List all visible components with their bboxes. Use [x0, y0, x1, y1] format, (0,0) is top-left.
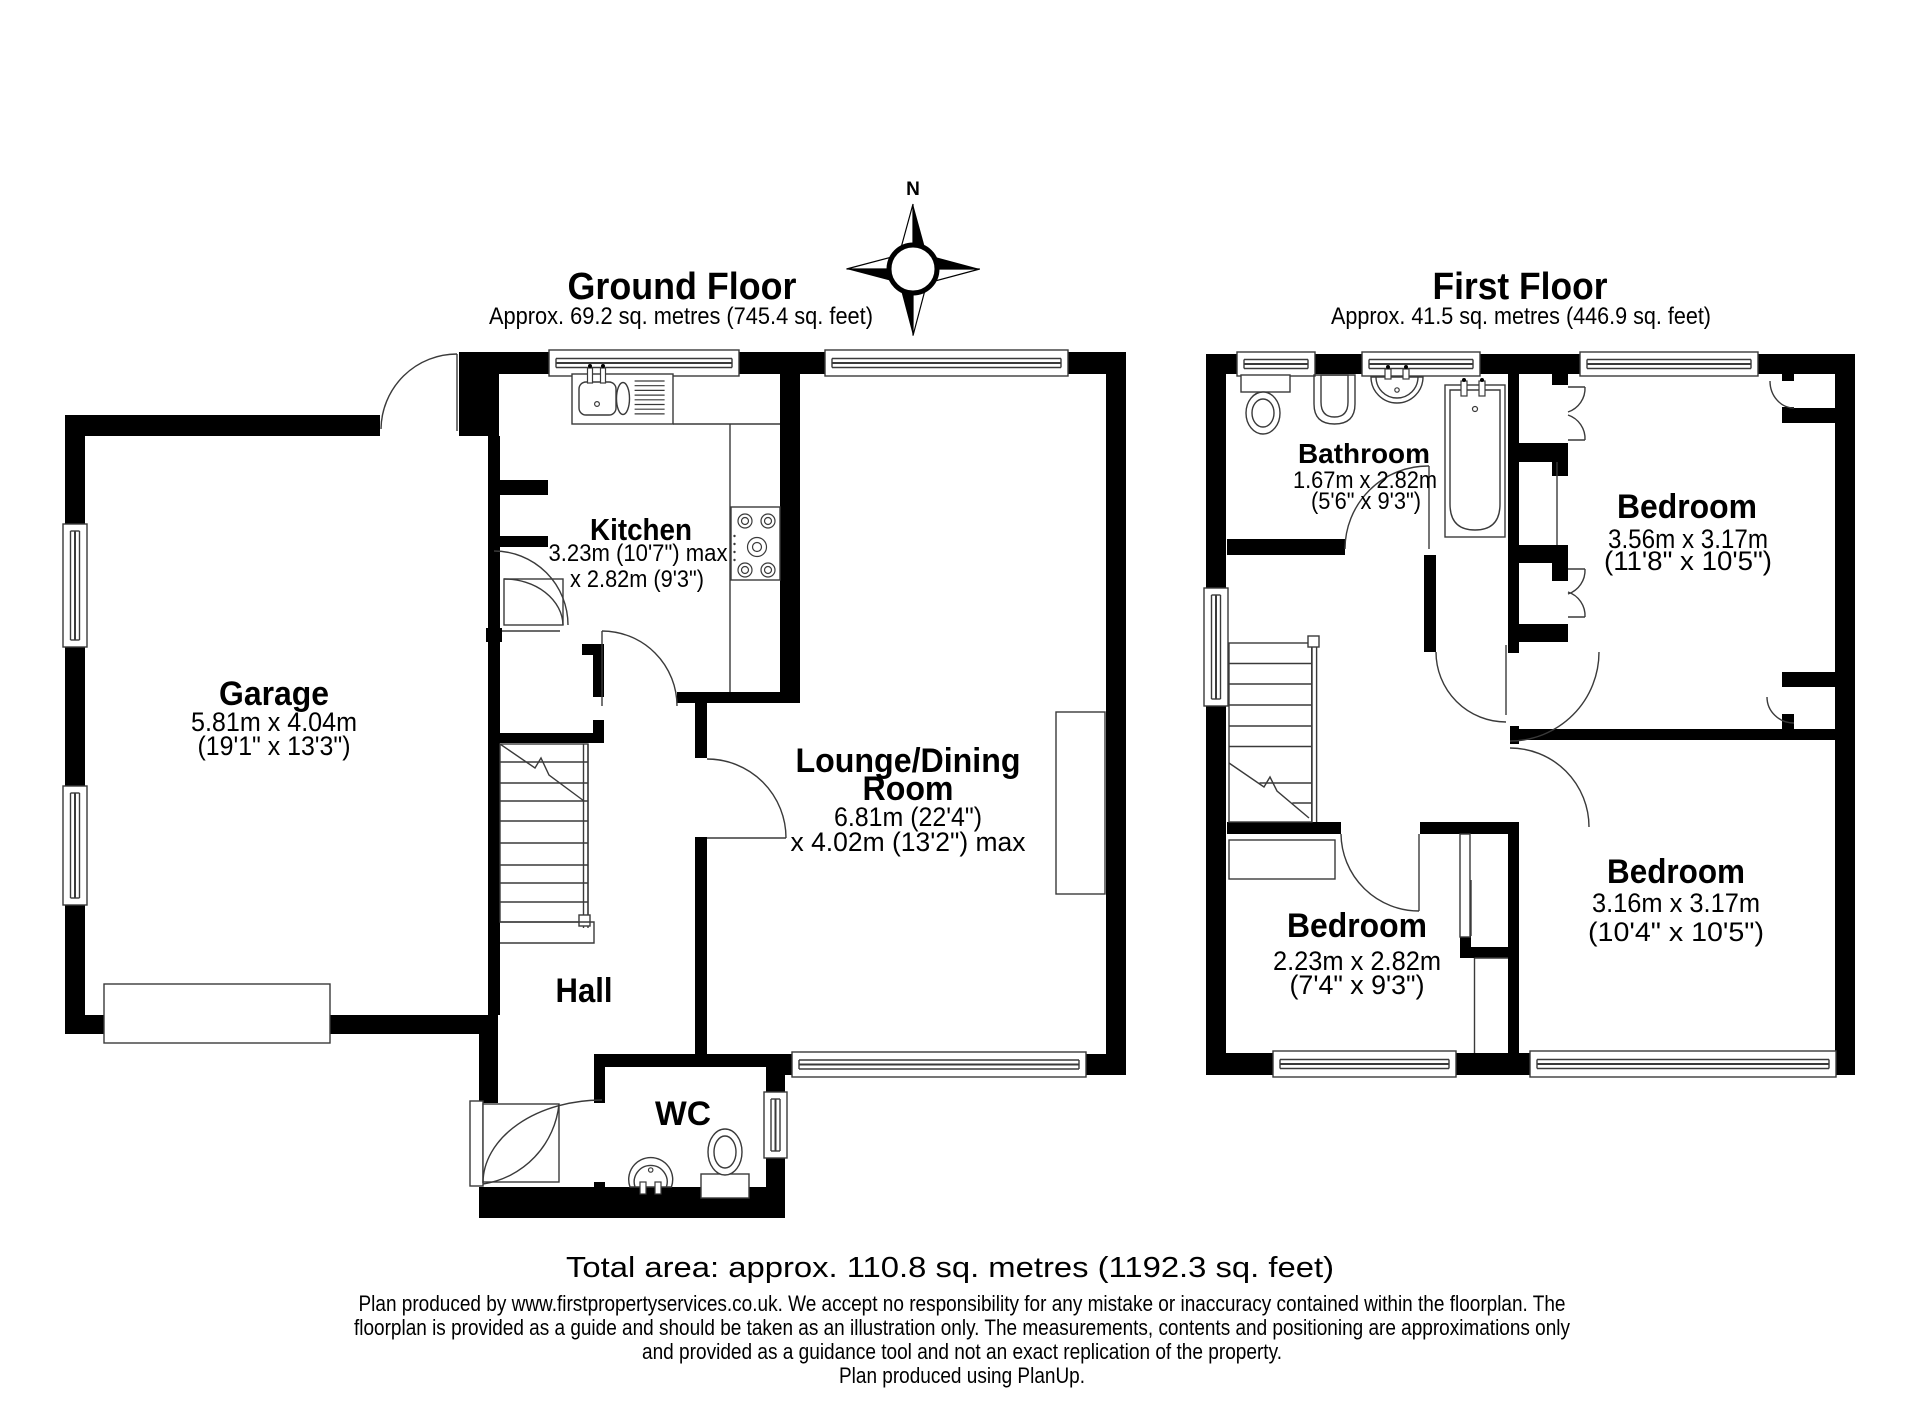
- svg-text:Bedroom: Bedroom: [1607, 853, 1745, 891]
- svg-text:Bedroom: Bedroom: [1287, 907, 1427, 945]
- svg-text:3.16m x 3.17m: 3.16m x 3.17m: [1592, 888, 1760, 918]
- svg-text:and provided as a guidance too: and provided as a guidance tool and not …: [642, 1339, 1282, 1364]
- svg-text:Ground Floor: Ground Floor: [568, 266, 797, 308]
- svg-text:N: N: [906, 179, 920, 200]
- svg-text:x 4.02m (13'2") max: x 4.02m (13'2") max: [791, 827, 1026, 857]
- svg-text:Bathroom: Bathroom: [1298, 438, 1430, 469]
- svg-text:(19'1" x 13'3"): (19'1" x 13'3"): [198, 731, 351, 761]
- svg-text:Approx. 69.2 sq. metres (745.4: Approx. 69.2 sq. metres (745.4 sq. feet): [489, 303, 873, 330]
- svg-text:WC: WC: [655, 1095, 711, 1133]
- svg-text:floorplan is provided as a gui: floorplan is provided as a guide and sho…: [354, 1315, 1570, 1340]
- svg-text:Bedroom: Bedroom: [1617, 488, 1757, 526]
- svg-text:Total area: approx. 110.8 sq.: Total area: approx. 110.8 sq. metres (11…: [566, 1252, 1334, 1284]
- svg-text:Hall: Hall: [556, 972, 613, 1010]
- svg-text:(5'6" x 9'3"): (5'6" x 9'3"): [1311, 488, 1421, 515]
- svg-text:x 2.82m (9'3"): x 2.82m (9'3"): [570, 566, 704, 593]
- svg-text:Plan produced using PlanUp.: Plan produced using PlanUp.: [839, 1363, 1085, 1388]
- svg-text:3.23m (10'7") max: 3.23m (10'7") max: [549, 540, 728, 567]
- svg-text:(7'4" x 9'3"): (7'4" x 9'3"): [1290, 970, 1425, 1000]
- svg-text:(11'8" x 10'5"): (11'8" x 10'5"): [1604, 546, 1772, 576]
- svg-text:(10'4" x 10'5"): (10'4" x 10'5"): [1588, 917, 1764, 947]
- svg-text:Approx. 41.5 sq. metres (446.9: Approx. 41.5 sq. metres (446.9 sq. feet): [1331, 303, 1711, 330]
- svg-text:First Floor: First Floor: [1433, 266, 1608, 308]
- svg-text:Plan produced by www.firstprop: Plan produced by www.firstpropertyservic…: [359, 1291, 1566, 1316]
